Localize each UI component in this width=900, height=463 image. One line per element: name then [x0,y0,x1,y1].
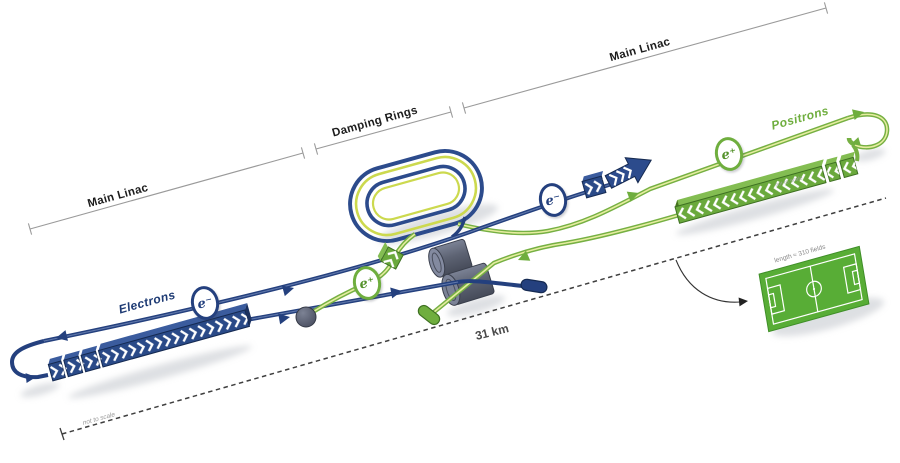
schematic-artwork [0,0,900,463]
positron-target-icon [296,307,316,327]
scale-dashed-line [60,198,886,440]
ilc-schematic: Main Linac Damping Rings Main Linac Elec… [0,0,900,463]
electron-beam-dump-icon [520,279,547,294]
leader-arrow-icon [676,260,748,306]
